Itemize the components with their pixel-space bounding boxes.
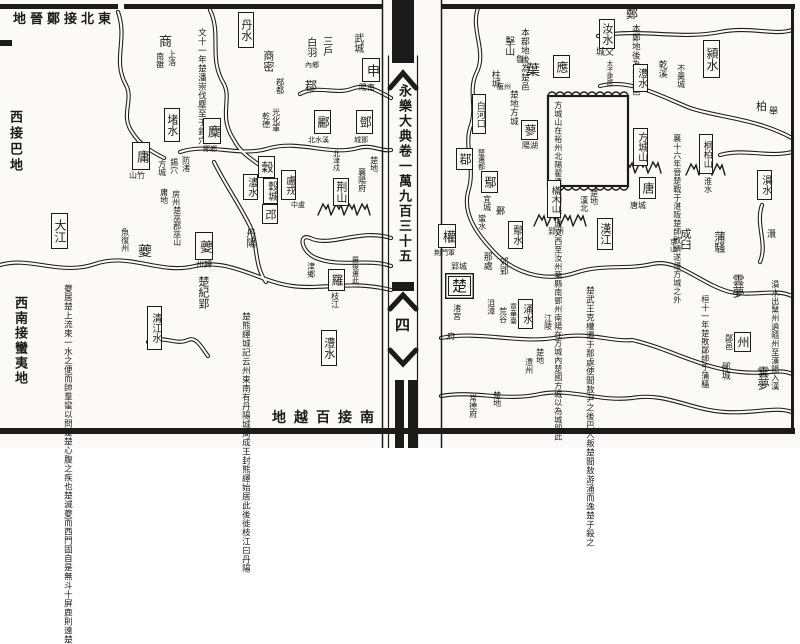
river-cartouche: 潁水 <box>703 40 720 78</box>
place-label: 渚宮 <box>452 304 461 320</box>
state-cartouche: 應 <box>553 55 570 78</box>
place-label: 不羹城 <box>676 64 685 88</box>
place-label: 鄭 <box>626 8 638 21</box>
place-label: 宜城 <box>482 195 491 211</box>
place-label: 澧州 <box>524 358 533 374</box>
place-label: 鄀 <box>305 80 317 93</box>
place-label: 方城 <box>157 160 166 176</box>
place-label: 唐城 <box>630 202 646 211</box>
place-label: 漢北 <box>579 196 588 212</box>
state-cartouche: 羅 <box>328 269 345 291</box>
place-label: 錫穴 <box>169 158 178 174</box>
place-label: 楚地 <box>535 348 544 364</box>
place-label: 楚地 <box>589 189 598 205</box>
place-label: 房州 <box>171 190 180 206</box>
annotation-note: 楚武王克權遷于那處使閻敖尹之後巴人叛楚閻敖游涌而逸楚子殺之 <box>584 286 594 378</box>
mountain-label: 擊山 <box>502 36 513 56</box>
spine-black-bar <box>408 380 417 448</box>
river-cartouche: 鄢水 <box>508 221 523 249</box>
place-label: 江陵 <box>543 314 552 330</box>
river-cartouche: 堵水 <box>164 108 180 142</box>
river-path <box>118 12 164 158</box>
state-cartouche: 酈 <box>314 110 331 134</box>
annotation-note: 太子建居 <box>605 60 612 86</box>
annotation-note: 楚遷都 <box>477 149 485 170</box>
river-cartouche: 澧水 <box>321 330 337 366</box>
annotation-note: 羅後遷此 <box>351 256 359 284</box>
margin-note-west: 西接巴地 <box>7 110 21 174</box>
place-label: 成臼 <box>679 228 691 250</box>
state-cartouche: 權 <box>438 224 456 248</box>
state-cartouche: 盧戎 <box>281 170 296 200</box>
fishtail-icon <box>390 295 416 309</box>
state-cartouche: 邔 <box>262 204 278 224</box>
river-label: 沮漳 <box>486 299 495 315</box>
place-label: 城父 <box>596 49 614 59</box>
place-label: 楚紀郢 <box>197 276 209 309</box>
state-cartouche: 蓼 <box>521 120 538 140</box>
river-cartouche: 溳水 <box>757 170 772 200</box>
place-cartouche: 穀城 <box>263 178 278 204</box>
mountain-cartouche: 方城山 <box>633 128 648 166</box>
place-label: 白羽 <box>304 37 315 57</box>
river-cartouche: 澧水 <box>633 64 648 92</box>
place-label: 乾溪 <box>656 60 666 78</box>
state-cartouche: 穀 <box>258 156 275 178</box>
margin-note-southwest: 西南接蠻夷地 <box>12 296 26 386</box>
place-label: 郢州 <box>548 228 564 237</box>
place-label: 雲夢 <box>756 366 769 390</box>
place-label: 庸地 <box>159 188 168 204</box>
river-cartouche: 丹水 <box>238 12 254 48</box>
place-label: 鄖鄉 <box>203 146 217 154</box>
annotation-note: 方城山在裕州北陽翟連接西至方城又西至汝州葉縣南鄧州南陽在方城內楚國方城以為城即此 <box>553 101 563 181</box>
place-label: 鄀都 <box>275 78 284 94</box>
place-label: 商 <box>159 36 172 50</box>
river-cartouche: 涌水 <box>518 299 533 329</box>
annotation-note: 楚熊繹城記云州東南有丹陽城周成王封熊繹始居此後徙枝江曰丹陽 <box>240 312 250 378</box>
spine-black-bar <box>395 380 404 448</box>
fishtail-icon <box>390 350 416 364</box>
river-label: 蠻水 <box>477 214 486 230</box>
state-cartouche: 夔 <box>195 232 213 260</box>
river-cartouche: 大江 <box>51 213 68 249</box>
place-label: 章華臺 <box>509 303 517 324</box>
place-label: 郢城 <box>451 263 467 272</box>
place-label: 山竹 <box>129 172 145 181</box>
margin-note-south: 地越百接南 <box>272 411 382 426</box>
place-label: 光化軍 <box>271 108 280 132</box>
place-label: 常德府 <box>468 394 477 418</box>
place-label: 楚地 <box>369 156 378 172</box>
mountain-cartouche: 樠木山 <box>547 180 561 218</box>
state-cartouche: 鄢 <box>481 171 498 193</box>
place-label: 防渚 <box>181 156 190 172</box>
state-cartouche: 鄧 <box>356 110 373 134</box>
place-label: 商密 <box>262 50 274 72</box>
top-border-right <box>441 4 795 9</box>
state-cartouche: 麇 <box>203 118 221 144</box>
place-label: 上洛 <box>167 50 176 66</box>
place-label: 內鄉 <box>305 62 319 70</box>
place-label: 北津戍 <box>332 150 340 171</box>
river-cartouche: 漢江 <box>597 218 613 250</box>
spine-volume-title: 永樂大典卷一萬九百三十五 <box>394 84 413 294</box>
place-label: 夔 <box>138 245 152 260</box>
spine-black-bar <box>392 0 414 56</box>
annotation-note: 楚地方城 <box>508 90 518 110</box>
capital-cartouche: 楚 <box>448 276 471 296</box>
place-label: 鄾 <box>496 208 505 218</box>
river-cartouche: 濜水 <box>243 174 258 200</box>
place-label: 柏 <box>756 101 767 113</box>
place-label: 北水溪 <box>308 137 329 145</box>
annotation-note: 本鄭地後為楚邊邑 <box>630 24 640 62</box>
place-label: 京山 <box>669 238 677 252</box>
annotation-note: 楚巫郡巫山 <box>172 206 181 246</box>
state-cartouche: 州 <box>734 332 751 352</box>
left-edge-mark <box>0 40 12 46</box>
margin-note-northeast: 地晉鄭接北東 <box>13 13 115 27</box>
mountain-cartouche: 桐柏山 <box>699 134 713 174</box>
river-label: 淮水 <box>703 177 712 193</box>
state-cartouche: 庸 <box>132 142 150 170</box>
place-label: 葉 <box>526 64 540 79</box>
place-label: 鄖邑 <box>724 334 733 350</box>
river-label: 澴 <box>767 231 776 241</box>
place-label: 津鄉 <box>306 262 315 278</box>
place-label: 荒谷 <box>498 307 507 323</box>
place-label: 襄陽府 <box>357 168 366 192</box>
place-label: 陽湖 <box>522 142 538 151</box>
place-label: 中盧 <box>291 202 305 210</box>
annotation-note: 溳水出黳州遶隨州至漢陽入漢 <box>770 280 780 362</box>
place-label: 枝江 <box>330 292 339 308</box>
mountain-cartouche: 荆山 <box>333 178 349 206</box>
place-label: 城鄧 <box>354 137 368 145</box>
annotation-note: 桓十一年楚敗鄖師于蒲騷 <box>700 295 710 357</box>
place-label: 鄖城 <box>719 362 729 380</box>
spine-black-bar <box>392 56 414 63</box>
top-border-mid <box>124 4 382 9</box>
state-cartouche: 申 <box>362 58 380 82</box>
state-cartouche: 鄀 <box>456 148 473 170</box>
place-label: 蒲騷 <box>713 231 725 253</box>
place-label: 魚復州 <box>120 228 129 252</box>
right-border <box>791 4 794 434</box>
state-cartouche: 唐 <box>639 177 656 199</box>
place-label: 乾德 <box>261 112 270 128</box>
place-label: 郊郢 <box>497 257 507 275</box>
yongle-dadian-map-page: 永樂大典卷一萬九百三十五 四 地晉鄭接北東西接巴地西南接蠻夷地地越百接南商上洛南… <box>0 0 800 448</box>
place-label: 陽南 <box>359 84 375 93</box>
bottom-border <box>0 428 795 434</box>
place-label: 楚地 <box>492 391 501 407</box>
river-cartouche: 汝水 <box>599 19 615 49</box>
river-cartouche: 清江水 <box>147 306 162 350</box>
place-label: 州歸 <box>196 261 212 270</box>
place-cartouche: 白河口 <box>472 94 486 134</box>
place-label: 丹陽 <box>243 228 254 248</box>
place-label: 荆門軍 <box>434 250 455 258</box>
place-label: 府 <box>447 333 455 342</box>
annotation-note: 襄十六年晉楚戰于湛阪楚師敗績遂侵方城之外 <box>672 134 682 200</box>
top-border-left <box>0 4 118 9</box>
place-label: 武城 <box>351 33 362 53</box>
annotation-note: 本鄀地後為楚邑 <box>519 28 529 64</box>
annotation-note: 夔居楚上流束一水之便而帥羣蠻以問楚楚心腹之疾也楚滅夔而西門固自是無斗十屏鹿則遠楚 <box>62 284 72 368</box>
annotation-note: 文十一年楚潘崇伐麇至于錫穴 <box>196 28 206 98</box>
place-label: 雲夢 <box>731 274 744 298</box>
place-label: 舉 <box>769 108 778 118</box>
place-label: 三戶 <box>320 36 331 56</box>
place-label: 南雒 <box>155 52 164 68</box>
spine-page-number: 四 <box>395 314 410 335</box>
place-label: 那處 <box>481 252 491 270</box>
